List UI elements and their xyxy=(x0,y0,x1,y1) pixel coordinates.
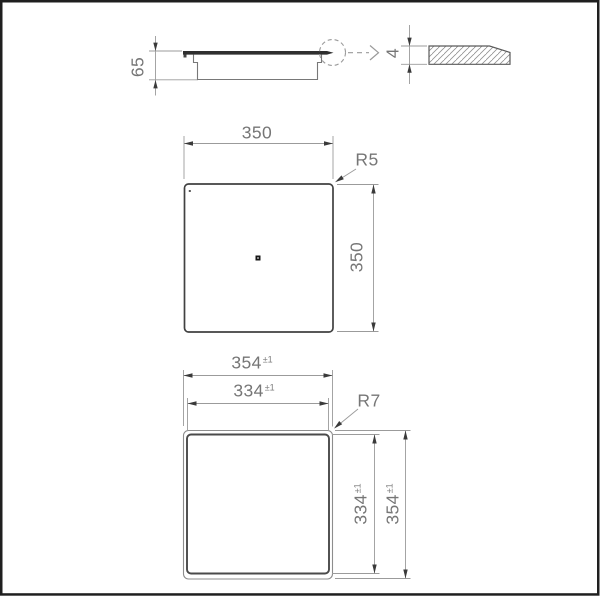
center-marker-inner xyxy=(257,257,259,259)
dim-354-right-label: 354±1 xyxy=(384,483,402,524)
dim-65-arrow-bottom xyxy=(153,80,157,88)
cutout-inner-square xyxy=(187,435,329,574)
cutout-outer-square xyxy=(184,431,333,580)
dim-334-top-arrow-left xyxy=(188,401,197,405)
radius-r5-label: R5 xyxy=(355,151,378,169)
dim-350-right-label: 350 xyxy=(348,242,366,272)
dim-334-top-arrow-right xyxy=(320,401,329,405)
glass-section-hatched xyxy=(429,46,510,64)
dim-334-top xyxy=(188,398,329,430)
dim-334-right-tolerance: ±1 xyxy=(352,483,362,493)
dim-350-top-label: 350 xyxy=(242,124,272,142)
dim-334-top-tolerance: ±1 xyxy=(265,382,275,392)
dim-354-right-tolerance: ±1 xyxy=(384,483,394,493)
dim-4-arrow-top xyxy=(407,38,411,46)
dim-4-arrow-bottom xyxy=(407,64,411,72)
plan-view xyxy=(184,136,379,332)
dim-334-right-label: 334±1 xyxy=(352,483,370,524)
dim-334-right-arrow-bottom xyxy=(372,565,376,574)
page-frame xyxy=(1,1,598,594)
radius-r7-label: R7 xyxy=(357,392,380,410)
dim-4 xyxy=(401,25,427,84)
dim-354-top-arrow-right xyxy=(324,373,333,377)
dim-334-top-label: 334±1 xyxy=(233,382,274,400)
r5-leader-arrow xyxy=(335,175,344,182)
glass-plate-profile xyxy=(183,51,334,55)
body-profile xyxy=(194,55,322,80)
dim-354-top-tolerance: ±1 xyxy=(263,354,273,364)
dim-65-label: 65 xyxy=(129,57,147,77)
side-view xyxy=(149,36,379,96)
drawing-linework xyxy=(0,0,600,600)
glass-edge-lip xyxy=(184,55,187,58)
dim-354-right-arrow-bottom xyxy=(403,570,407,579)
corner-reference-dot xyxy=(189,190,191,192)
detail-pointer-arrowhead xyxy=(370,46,379,61)
dim-354-top-label: 354±1 xyxy=(231,354,272,372)
dim-350-top xyxy=(184,136,333,179)
drawing-canvas: 65 4 350 R5 350 354±1 334±1 R7 334±1 354… xyxy=(0,0,600,600)
dim-354-right-arrow-top xyxy=(403,431,407,440)
r7-leader-arrow xyxy=(334,421,342,429)
dim-350-right-arrow-top xyxy=(371,185,375,194)
dim-334-right-arrow-top xyxy=(372,435,376,444)
dim-354-top-arrow-left xyxy=(184,373,193,377)
dim-65-arrow-top xyxy=(153,43,157,51)
detail-section-view xyxy=(401,25,510,84)
dim-350-right-arrow-bottom xyxy=(371,323,375,332)
dim-350-top-arrow-right xyxy=(324,141,333,145)
dim-350-top-arrow-left xyxy=(184,141,193,145)
dim-4-label: 4 xyxy=(384,48,402,58)
